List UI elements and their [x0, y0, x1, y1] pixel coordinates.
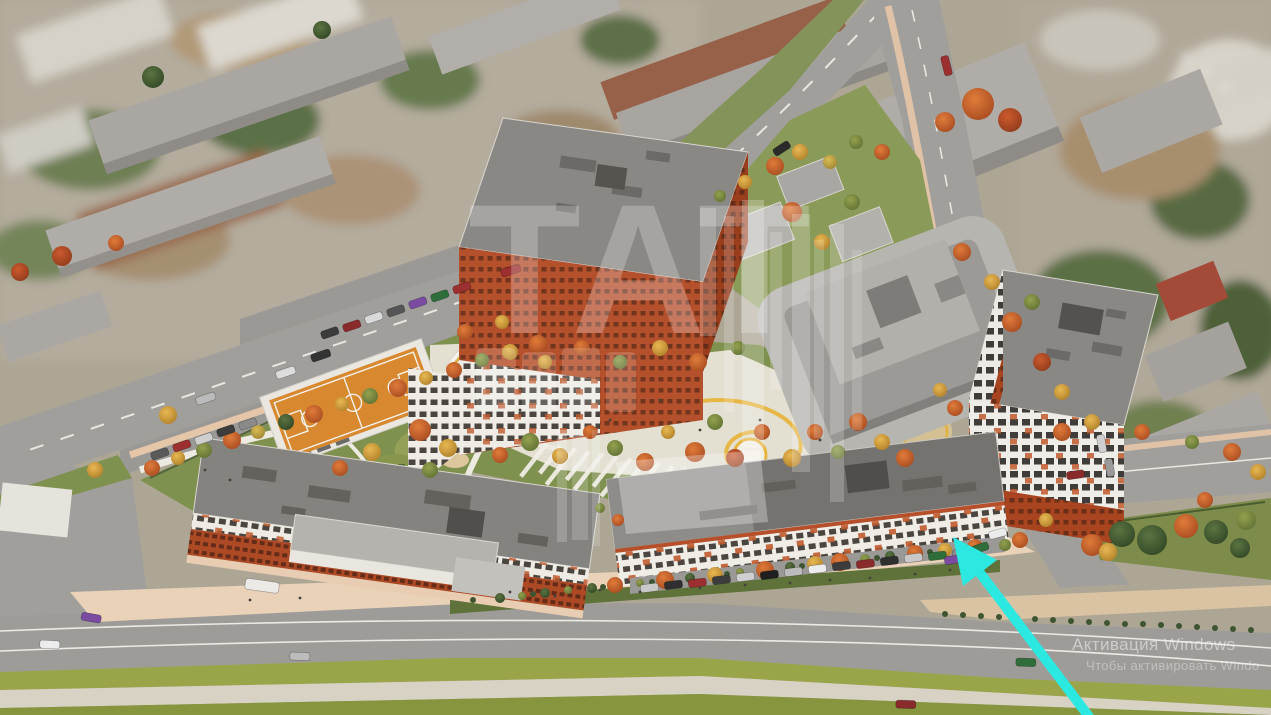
masterplan-screenshot: ТАТ Активация Windows Чтобы активировать…	[0, 0, 1271, 715]
activation-line2: Чтобы активировать Windo	[1086, 659, 1260, 672]
activation-line1: Активация Windows	[1072, 635, 1235, 654]
small-white-building	[0, 482, 72, 537]
windows-activation-watermark: Активация Windows Чтобы активировать Win…	[1072, 636, 1260, 672]
masterplan-render: ТАТ	[0, 0, 1271, 715]
